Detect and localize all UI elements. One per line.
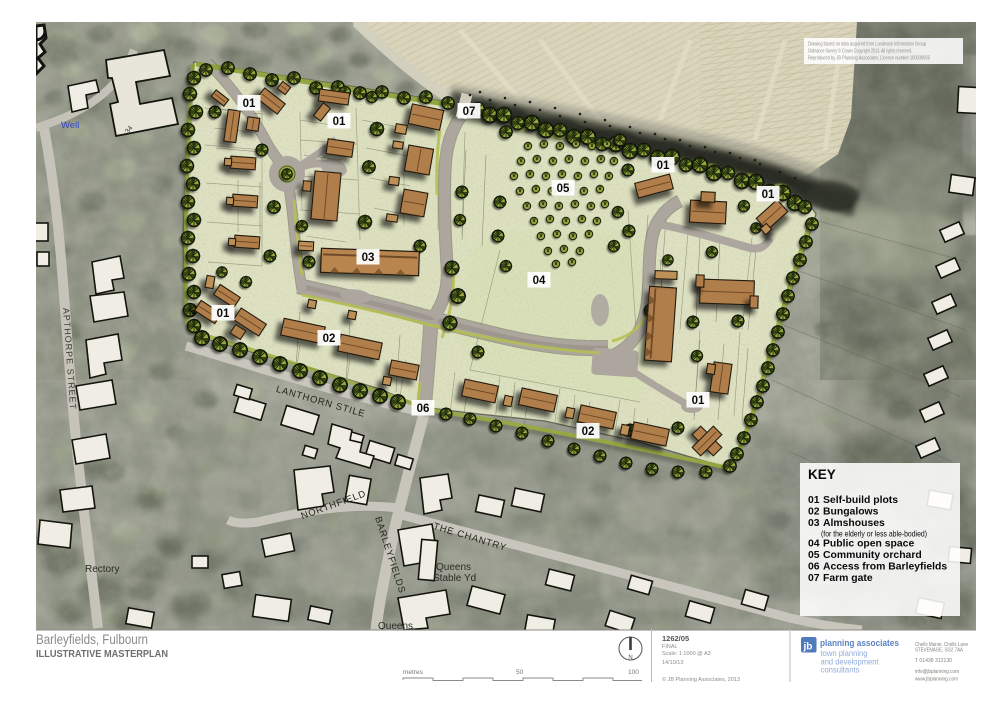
svg-text:Access from Barleyfields: Access from Barleyfields: [823, 562, 947, 573]
svg-text:01: 01: [217, 308, 230, 320]
svg-text:07: 07: [463, 106, 476, 118]
svg-text:Queens: Queens: [436, 562, 471, 573]
svg-text:(for the elderly or less able-: (for the elderly or less able-bodied): [821, 529, 927, 539]
svg-text:50: 50: [516, 669, 524, 676]
svg-text:03: 03: [362, 252, 375, 264]
svg-text:Community orchard: Community orchard: [823, 550, 922, 561]
svg-text:Self-build plots: Self-build plots: [823, 495, 898, 506]
svg-text:01: 01: [762, 189, 775, 201]
svg-text:Barleyfields, Fulbourn: Barleyfields, Fulbourn: [36, 631, 148, 647]
svg-text:1262/05: 1262/05: [662, 634, 689, 643]
svg-text:04: 04: [533, 275, 546, 287]
svg-text:N: N: [628, 655, 632, 661]
svg-text:01: 01: [657, 160, 670, 172]
svg-text:KEY: KEY: [808, 467, 836, 482]
svg-text:© JB Planning Associates, 2013: © JB Planning Associates, 2013: [662, 676, 740, 683]
svg-text:05: 05: [808, 550, 820, 561]
svg-text:01: 01: [333, 116, 346, 128]
svg-text:100: 100: [628, 669, 639, 676]
svg-text:07: 07: [808, 573, 820, 584]
svg-text:metres: metres: [403, 669, 424, 676]
svg-text:info@jbplanning.com: info@jbplanning.com: [915, 669, 959, 675]
svg-text:Bungalows: Bungalows: [823, 507, 879, 518]
svg-text:Ordnance Survey © Crown Copyri: Ordnance Survey © Crown Copyright 2013. …: [808, 48, 912, 55]
svg-text:03: 03: [808, 518, 820, 529]
svg-text:Public open space: Public open space: [823, 539, 914, 550]
svg-text:02: 02: [582, 426, 595, 438]
svg-text:Stable Yd: Stable Yd: [433, 573, 476, 584]
svg-text:Farm gate: Farm gate: [823, 573, 873, 584]
svg-text:01: 01: [808, 495, 820, 506]
svg-text:jb: jb: [803, 642, 813, 653]
svg-text:05: 05: [557, 183, 570, 195]
svg-text:Almshouses: Almshouses: [823, 518, 885, 529]
svg-text:14/10/13: 14/10/13: [662, 660, 683, 666]
svg-text:FINAL: FINAL: [662, 644, 678, 650]
svg-text:Scale: 1:1000 @ A3: Scale: 1:1000 @ A3: [662, 651, 711, 657]
svg-text:Drawing based on data acquired: Drawing based on data acquired from Land…: [808, 42, 926, 48]
svg-text:01: 01: [692, 395, 705, 407]
svg-text:STEVENAGE, SG2 7AA: STEVENAGE, SG2 7AA: [915, 648, 963, 654]
svg-text:Rectory: Rectory: [85, 564, 119, 575]
svg-text:consultants: consultants: [821, 665, 860, 675]
svg-text:02: 02: [323, 333, 336, 345]
svg-text:04: 04: [808, 539, 820, 550]
svg-text:T 01438 312130: T 01438 312130: [915, 658, 952, 664]
svg-text:Well: Well: [61, 120, 79, 131]
svg-text:ILLUSTRATIVE MASTERPLAN: ILLUSTRATIVE MASTERPLAN: [36, 649, 168, 660]
svg-text:06: 06: [808, 562, 820, 573]
svg-text:06: 06: [417, 403, 430, 415]
svg-text:www.jbplanning.com: www.jbplanning.com: [914, 677, 958, 683]
svg-text:02: 02: [808, 507, 820, 518]
svg-text:Reproduced by JB Planning Asso: Reproduced by JB Planning Associates. Li…: [808, 56, 930, 62]
svg-text:01: 01: [243, 98, 256, 110]
